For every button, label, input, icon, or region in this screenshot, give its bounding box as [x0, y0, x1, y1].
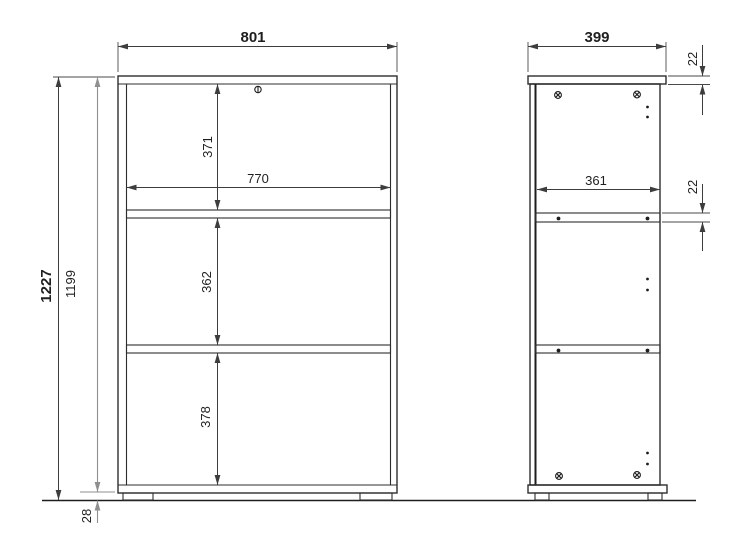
front-left-foot [123, 493, 153, 500]
pin-hole-dot [646, 289, 649, 292]
front-view [118, 76, 397, 500]
side-top-panel [528, 76, 666, 84]
dim-label-inner-width: 770 [247, 171, 269, 186]
pin-hole-dot [646, 106, 649, 109]
front-shelf-2 [127, 345, 391, 353]
dimension-top-compartment: 371 [200, 84, 218, 210]
dim-label-carcass-height: 1199 [63, 270, 78, 298]
dimension-carcass-height: 1199 [63, 77, 115, 492]
technical-drawing-canvas: 801 399 1227 1199 28 371 362 378 [0, 0, 746, 559]
dimension-inner-depth: 361 [537, 173, 660, 190]
front-right-foot [360, 493, 392, 500]
dimension-top-panel-thickness: 22 [668, 45, 710, 115]
side-view [528, 76, 667, 500]
dim-label-inner-depth: 361 [585, 173, 607, 188]
dimension-middle-compartment: 362 [199, 218, 218, 345]
dim-label-top-compartment: 371 [200, 136, 215, 158]
side-shelf-2 [536, 345, 661, 353]
side-bottom-panel [528, 485, 667, 493]
side-left-foot [535, 493, 549, 500]
dim-label-plinth-height: 28 [79, 509, 94, 523]
dimension-inner-width: 770 [127, 171, 391, 188]
screw-icon [556, 473, 563, 480]
dimension-overall-depth: 399 [528, 29, 666, 72]
dim-label-overall-width: 801 [240, 29, 265, 46]
front-carcass-outline [118, 76, 397, 493]
dim-label-bottom-compartment: 378 [198, 406, 213, 428]
dimension-plinth-height: 28 [79, 501, 98, 524]
cabinet-dimension-drawing: 801 399 1227 1199 28 371 362 378 [0, 0, 746, 559]
dim-label-overall-height: 1227 [38, 269, 55, 302]
shelf-pin-dot [557, 217, 561, 221]
dimension-bottom-compartment: 378 [198, 353, 218, 485]
dim-label-top-panel-thickness: 22 [685, 52, 700, 66]
shelf-pin-dot [646, 217, 650, 221]
screw-icon [634, 91, 641, 98]
screw-icon [634, 472, 641, 479]
pin-hole-dot [646, 278, 649, 281]
side-panel-outline [530, 84, 660, 485]
front-shelf-1 [127, 210, 391, 218]
side-shelf-1 [536, 213, 661, 222]
pin-hole-dot [646, 463, 649, 466]
dimension-overall-width: 801 [118, 29, 397, 72]
dimension-shelf-thickness: 22 [662, 180, 710, 251]
shelf-pin-dot [646, 349, 650, 353]
pin-hole-dot [646, 116, 649, 119]
dim-label-middle-compartment: 362 [199, 271, 214, 293]
dim-label-shelf-thickness: 22 [685, 180, 700, 194]
dim-label-overall-depth: 399 [584, 29, 609, 46]
cam-lock-icon [255, 86, 261, 92]
pin-hole-dot [646, 452, 649, 455]
side-right-foot [648, 493, 662, 500]
screw-icon [555, 92, 562, 99]
shelf-pin-dot [557, 349, 561, 353]
